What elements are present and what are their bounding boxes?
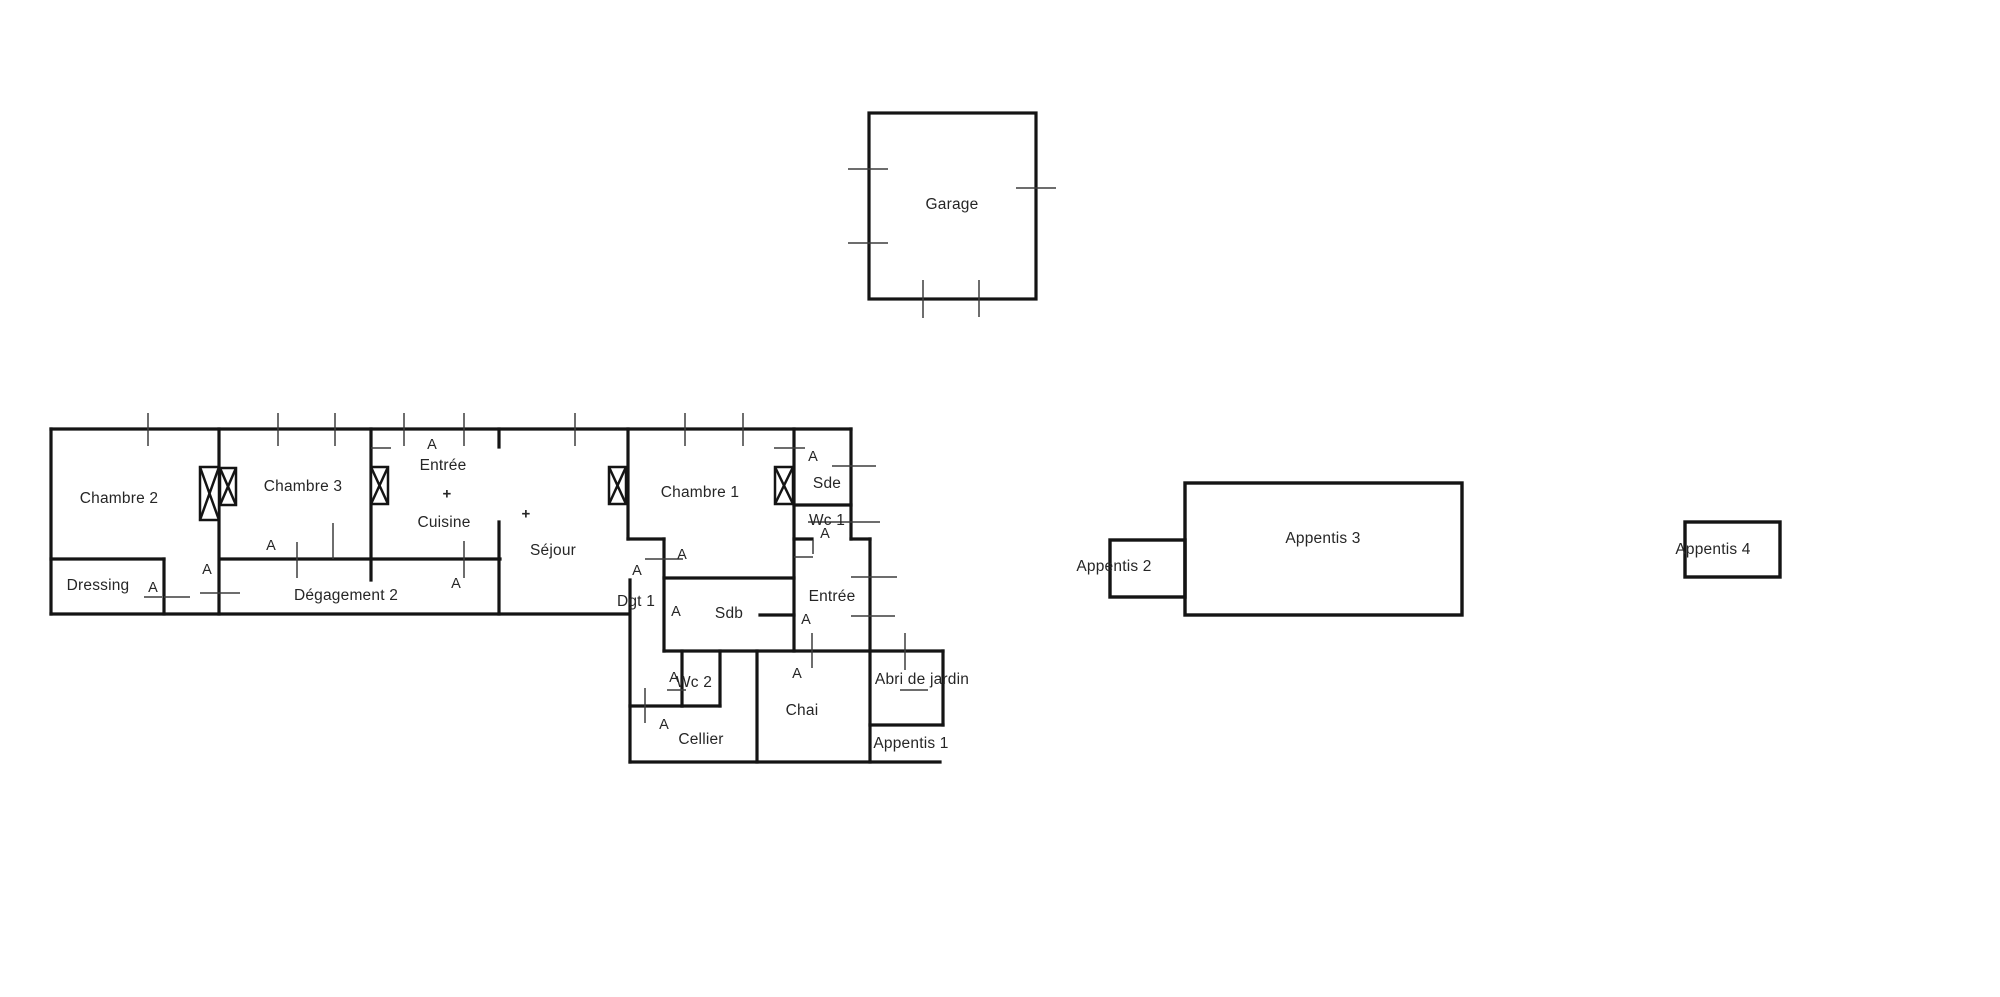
room-label-entree-cuisine-line2: +: [443, 486, 452, 503]
room-label-appentis2: Appentis 2: [1076, 558, 1151, 576]
room-label-entree2: Entrée: [809, 588, 856, 606]
door-marker: A: [792, 666, 802, 682]
door-marker: A: [451, 576, 461, 592]
room-label-abri-de-jardin: Abri de jardin: [875, 671, 969, 689]
room-label-appentis1: Appentis 1: [873, 735, 948, 753]
room-label-sejour: Séjour: [530, 542, 576, 560]
room-label-cellier: Cellier: [678, 731, 723, 749]
door-marker: A: [266, 538, 276, 554]
room-label-appentis3: Appentis 3: [1285, 530, 1360, 548]
room-label-sde: Sde: [813, 475, 841, 493]
door-marker: A: [148, 580, 158, 596]
room-label-dgt1: Dgt 1: [617, 593, 655, 611]
floorplan-canvas: Garage Chambre 2 Chambre 3 Entrée + Cuis…: [0, 0, 2000, 997]
room-label-chai: Chai: [786, 702, 819, 720]
door-marker: A: [801, 612, 811, 628]
room-label-entree-cuisine-line1: Entrée: [420, 457, 467, 475]
room-label-appentis4: Appentis 4: [1675, 541, 1750, 559]
door-marker: A: [202, 562, 212, 578]
room-label-garage: Garage: [926, 196, 979, 214]
door-marker: A: [820, 526, 830, 542]
room-label-sejour-plus: +: [522, 506, 531, 523]
room-label-chambre2: Chambre 2: [80, 490, 158, 508]
room-label-entree-cuisine-line3: Cuisine: [417, 514, 470, 532]
room-label-dressing: Dressing: [67, 577, 130, 595]
door-marker: A: [427, 437, 437, 453]
door-marker: A: [677, 547, 687, 563]
door-marker: A: [669, 670, 679, 686]
floorplan-labels: Garage Chambre 2 Chambre 3 Entrée + Cuis…: [0, 0, 2000, 997]
door-marker: A: [671, 604, 681, 620]
door-marker: A: [659, 717, 669, 733]
room-label-degagement2: Dégagement 2: [294, 587, 398, 605]
door-marker: A: [632, 563, 642, 579]
room-label-sdb: Sdb: [715, 605, 743, 623]
room-label-chambre3: Chambre 3: [264, 478, 342, 496]
room-label-chambre1: Chambre 1: [661, 484, 739, 502]
door-marker: A: [808, 449, 818, 465]
room-label-wc2: Wc 2: [676, 674, 712, 692]
